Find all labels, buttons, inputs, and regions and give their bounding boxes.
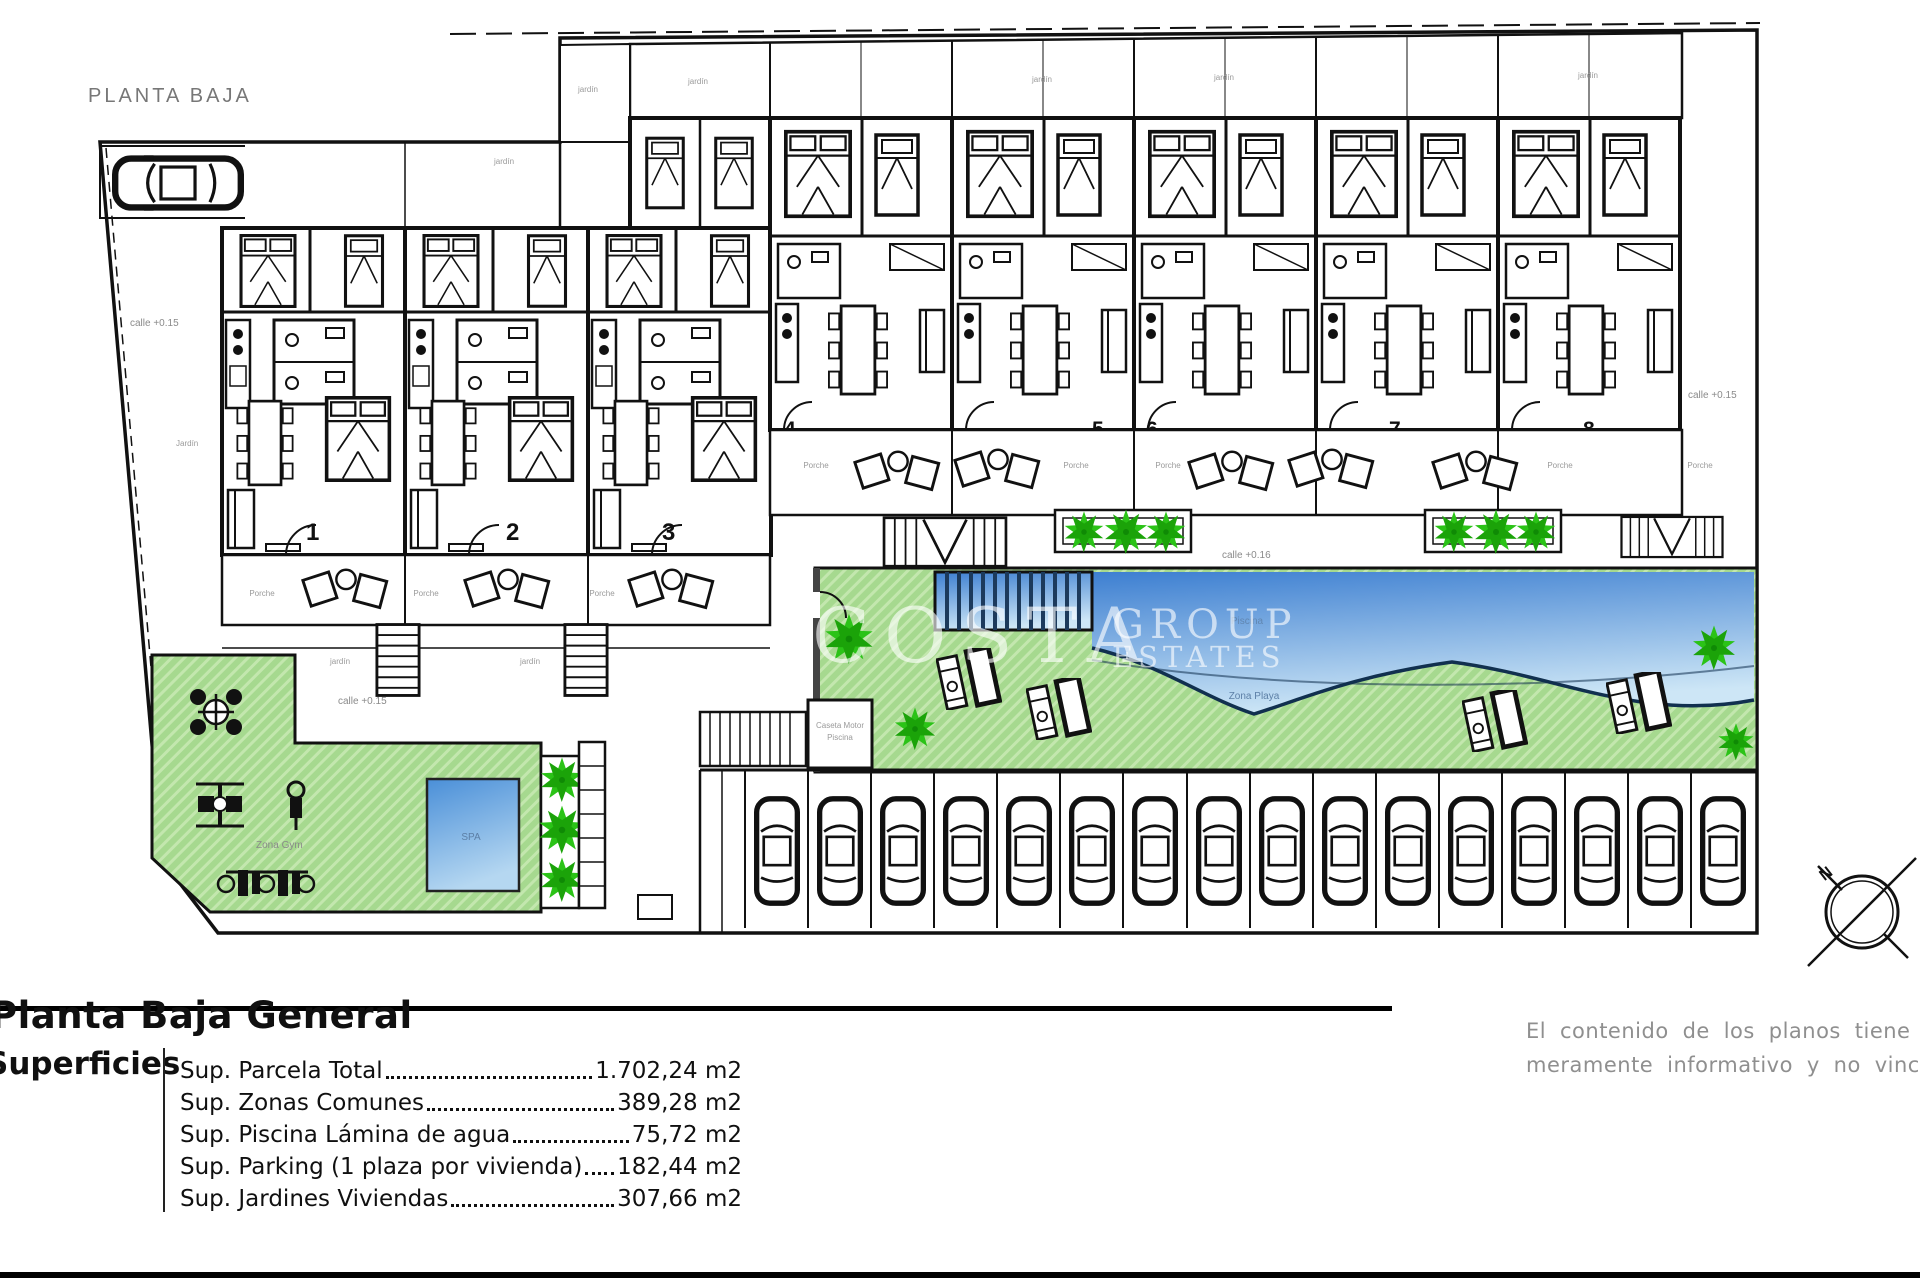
- car-icon: [1574, 799, 1620, 903]
- car-icon: [817, 799, 863, 903]
- dot-leader: [451, 1204, 614, 1207]
- garden-label: Jardín: [176, 439, 198, 448]
- surface-table: Sup. Parcela Total 1.702,24 m2 Sup. Zona…: [180, 1052, 742, 1212]
- porch-label: Porche: [1687, 461, 1713, 470]
- dot-leader: [427, 1108, 614, 1111]
- garden-label: jardín: [1031, 75, 1052, 84]
- car-icon: [880, 799, 926, 903]
- garden-label: jardín: [519, 657, 540, 666]
- pump-room-label: Piscina: [827, 733, 853, 742]
- stairs-icon: [565, 625, 607, 696]
- street-label: calle +0.15: [1688, 390, 1737, 401]
- surface-label: Sup. Parking (1 plaza por vivienda): [180, 1154, 582, 1180]
- watermark-word: ESTATES: [1112, 640, 1286, 674]
- surface-value: 182,44 m2: [617, 1154, 742, 1180]
- legend-row: Sup. Zonas Comunes 389,28 m2: [180, 1084, 742, 1116]
- disclaimer-line: El contenido de los planos tiene valo: [1526, 1014, 1920, 1048]
- car-icon: [943, 799, 989, 903]
- spa-pool: SPA: [427, 779, 519, 891]
- bed-icon: [716, 138, 753, 208]
- car-icon: [1322, 799, 1368, 903]
- surface-value: 389,28 m2: [617, 1090, 742, 1116]
- unit-number-1: 1: [306, 519, 319, 546]
- storage-units: [579, 742, 672, 919]
- legend-row: Sup. Parking (1 plaza por vivienda) 182,…: [180, 1148, 742, 1180]
- car-icon: [1511, 799, 1557, 903]
- legend-row: Sup. Jardines Viviendas 307,66 m2: [180, 1180, 742, 1212]
- surface-label: Sup. Parcela Total: [180, 1058, 383, 1084]
- porch-label: Porche: [249, 589, 275, 598]
- street-label: calle +0.15: [338, 696, 387, 707]
- car-icon: [1132, 799, 1178, 903]
- garden-label: jardín: [329, 657, 350, 666]
- disclaimer-note: El contenido de los planos tiene valo me…: [1526, 1014, 1920, 1082]
- car-icon: [1259, 799, 1305, 903]
- car-icon: [1069, 799, 1115, 903]
- dot-leader: [585, 1172, 614, 1175]
- parking-row: [700, 770, 1757, 933]
- car-icon: [1448, 799, 1494, 903]
- garden-label: jardín: [687, 77, 708, 86]
- garden-label: jardín: [1577, 71, 1598, 80]
- compass-icon: N: [1808, 858, 1916, 966]
- surface-value: 307,66 m2: [617, 1186, 742, 1212]
- bed-icon: [647, 138, 684, 208]
- building-units-4-8: 4 5 6 7 8 Porche Porche Porche Porche Po…: [630, 118, 1723, 566]
- watermark: COSTA GROUP ESTATES: [812, 591, 1298, 680]
- unit-number-2: 2: [506, 519, 519, 546]
- spa-label: SPA: [461, 832, 481, 843]
- porch-label: Porche: [413, 589, 439, 598]
- site-plan-sheet: jardín jardín jardín jardín jardín 1 2 3…: [0, 0, 1920, 1280]
- stairs-icon: [884, 518, 1006, 566]
- garden-label: jardín: [493, 157, 514, 166]
- porch-label: Porche: [1155, 461, 1181, 470]
- porch-label: Porche: [589, 589, 615, 598]
- unit-number-3: 3: [662, 519, 675, 546]
- car-icon: [1700, 799, 1746, 903]
- palm-planter: [1425, 501, 1564, 558]
- porch-label: Porche: [803, 461, 829, 470]
- garden-label: jardín: [1213, 73, 1234, 82]
- porch-label: Porche: [1063, 461, 1089, 470]
- legend-divider: [163, 1048, 165, 1212]
- disclaimer-line: meramente informativo y no vinculan: [1526, 1048, 1920, 1082]
- dot-leader: [386, 1076, 593, 1079]
- car-icon: [1196, 799, 1242, 903]
- street-parking-bay: [100, 44, 560, 228]
- car-icon: [115, 155, 241, 210]
- palm-planter: [1055, 501, 1194, 558]
- car-icon: [1006, 799, 1052, 903]
- building-units-1-3: 1 2 3 Porche Porche Porche jardín jardín: [222, 228, 771, 695]
- stairs-icon: [1621, 517, 1722, 557]
- legend-row: Sup. Parcela Total 1.702,24 m2: [180, 1052, 742, 1084]
- gym-zone-label: Zona Gym: [256, 840, 303, 851]
- pump-room-label: Caseta Motor: [816, 721, 864, 730]
- legend-section-label: Superficies: [0, 1046, 180, 1082]
- surface-value: 1.702,24 m2: [595, 1058, 742, 1084]
- sheet-title: PLANTA BAJA: [88, 85, 252, 107]
- garden-label: jardín: [577, 85, 598, 94]
- pool-pump-room: Caseta Motor Piscina: [808, 700, 872, 768]
- stairs-icon: [377, 625, 419, 696]
- porch-label: Porche: [1547, 461, 1573, 470]
- surface-value: 75,72 m2: [632, 1122, 742, 1148]
- surface-label: Sup. Zonas Comunes: [180, 1090, 424, 1116]
- car-icon: [754, 799, 800, 903]
- beach-zone-label: Zona Playa: [1229, 691, 1280, 702]
- car-icon: [1385, 799, 1431, 903]
- watermark-name: COSTA: [812, 591, 1156, 680]
- car-icon: [1637, 799, 1683, 903]
- legend-row: Sup. Piscina Lámina de agua 75,72 m2: [180, 1116, 742, 1148]
- surface-label: Sup. Jardines Viviendas: [180, 1186, 448, 1212]
- street-label: calle +0.16: [1222, 550, 1271, 561]
- street-label: calle +0.15: [130, 318, 179, 329]
- legend-title: Planta Baja General: [0, 994, 413, 1037]
- dot-leader: [513, 1140, 629, 1143]
- sheet-border-bottom: [0, 1272, 1920, 1278]
- surface-label: Sup. Piscina Lámina de agua: [180, 1122, 510, 1148]
